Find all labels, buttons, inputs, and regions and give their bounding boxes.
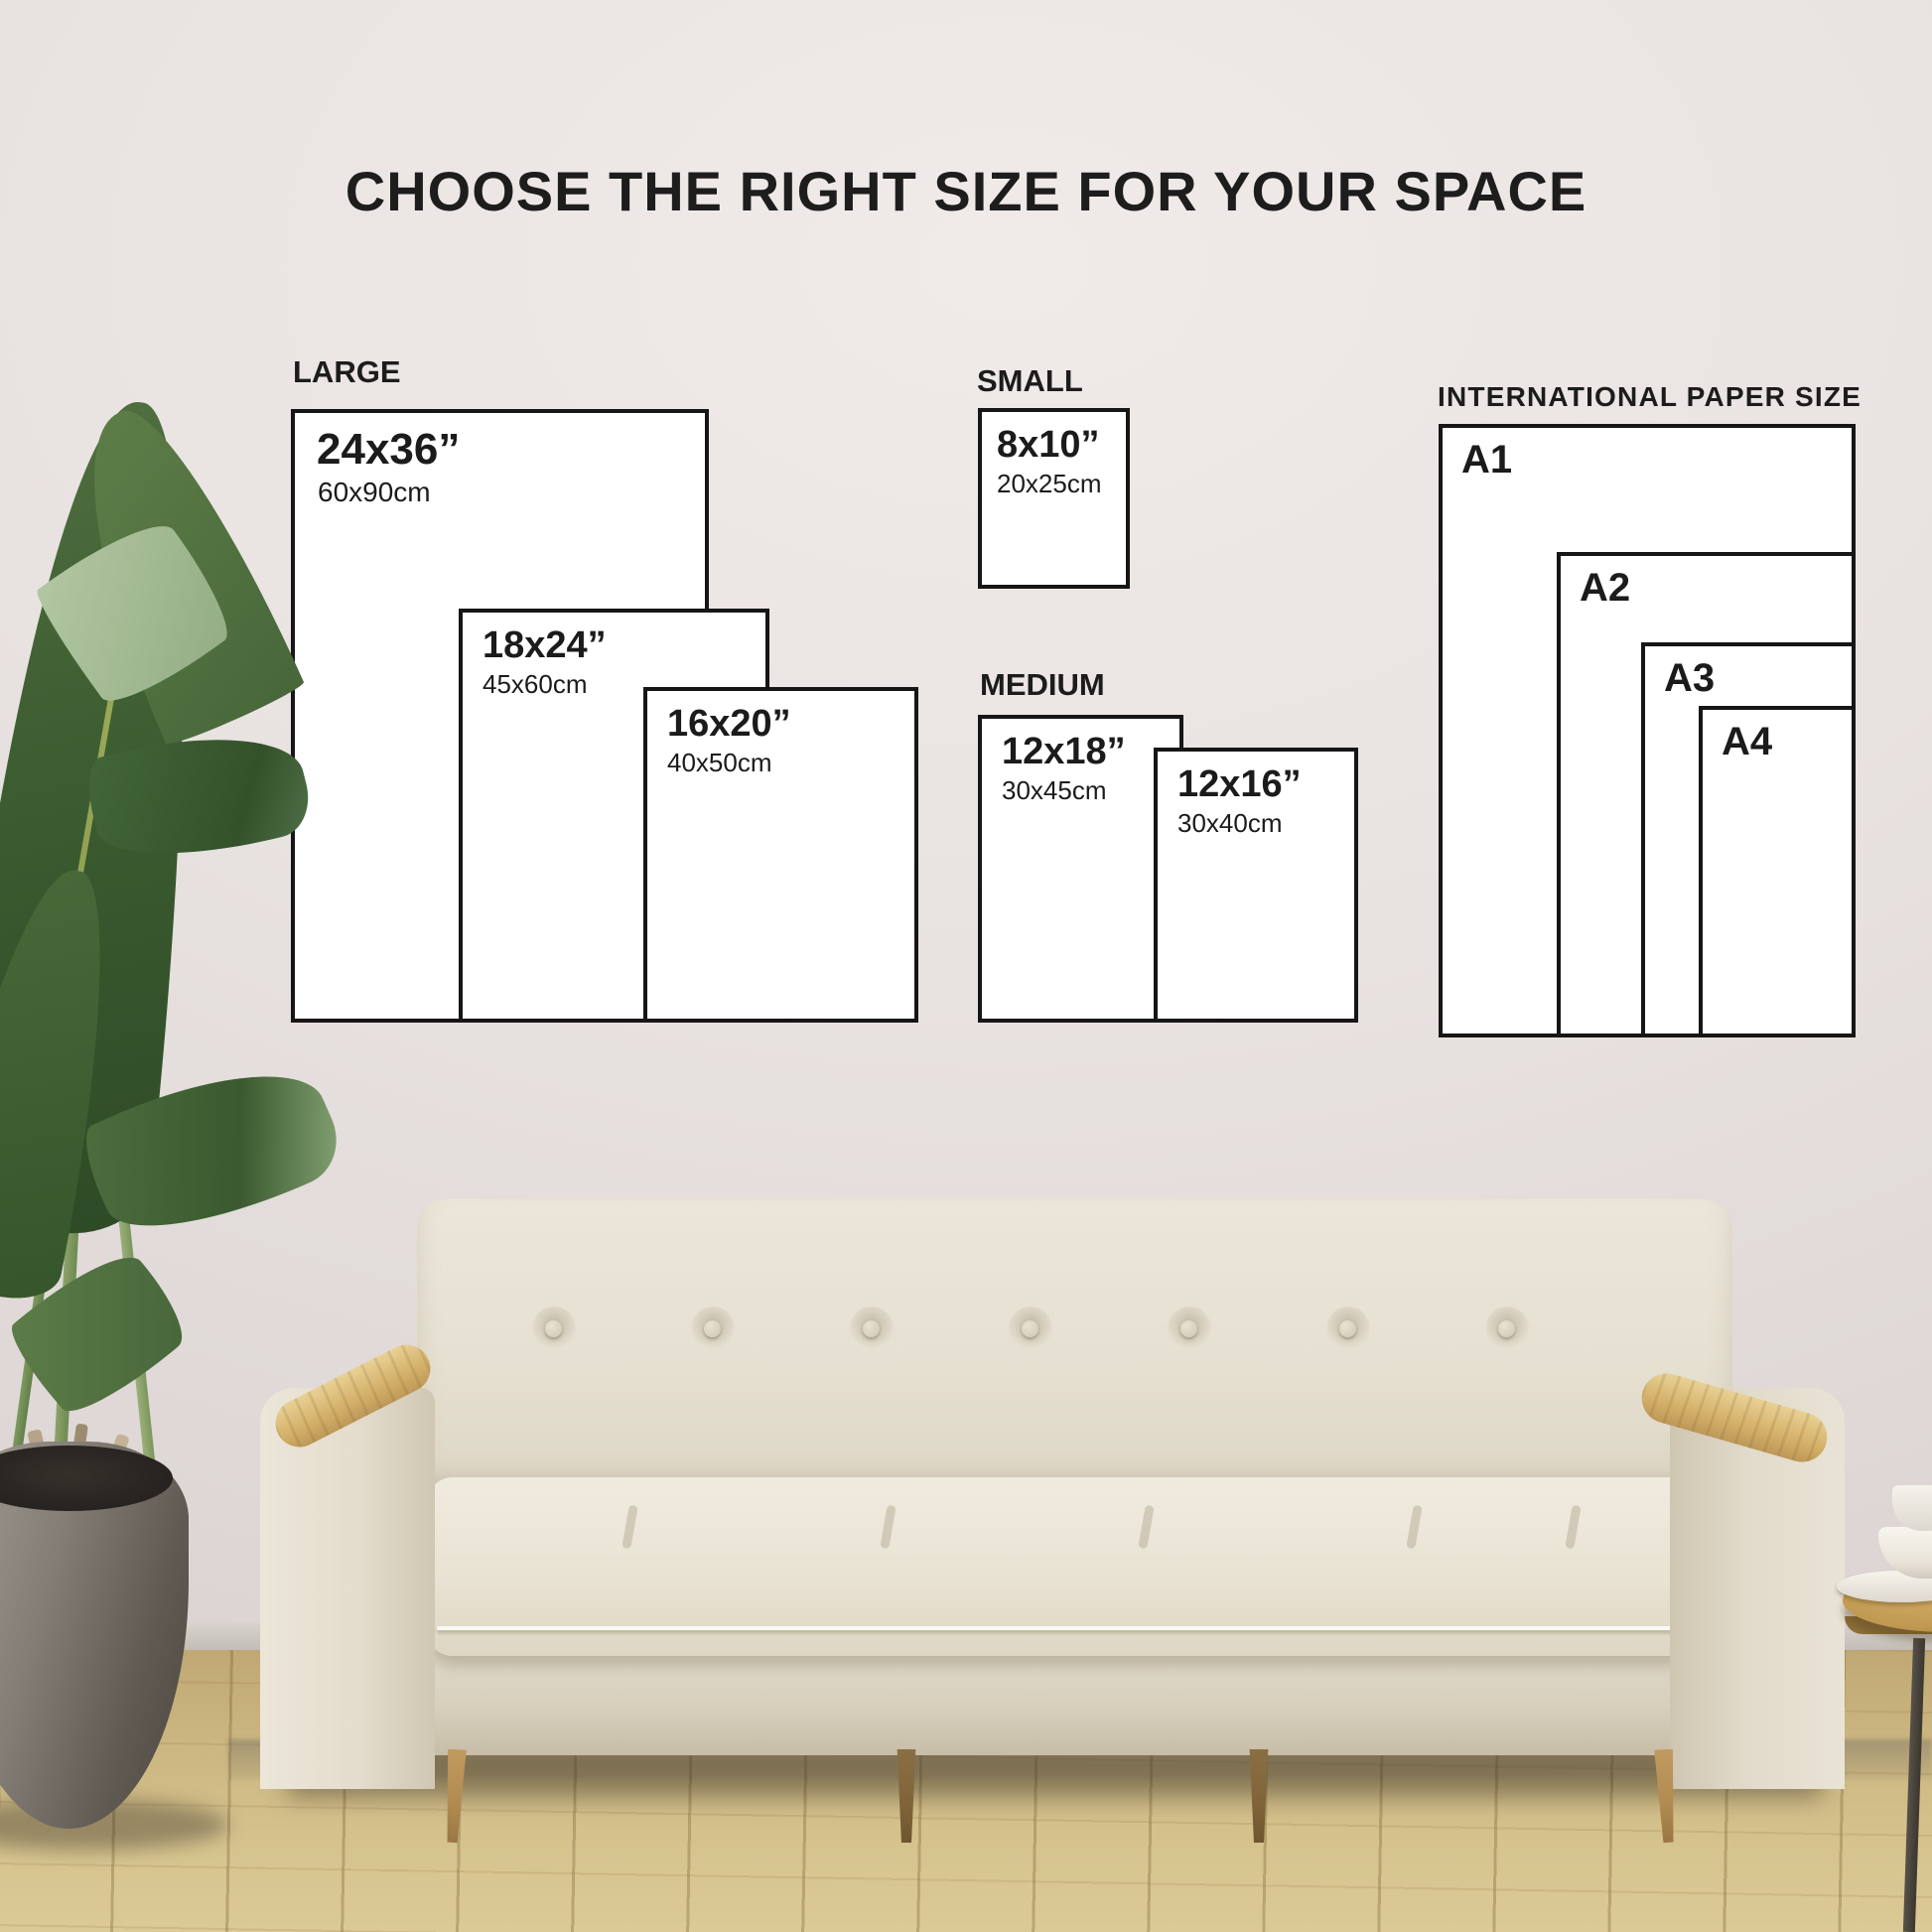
poster-size-guide: CHOOSE THE RIGHT SIZE FOR YOUR SPACE LAR… (0, 0, 1932, 1932)
side-table-leg (1903, 1638, 1925, 1932)
side-table (0, 0, 1932, 1932)
coffee-cup (1892, 1485, 1932, 1531)
